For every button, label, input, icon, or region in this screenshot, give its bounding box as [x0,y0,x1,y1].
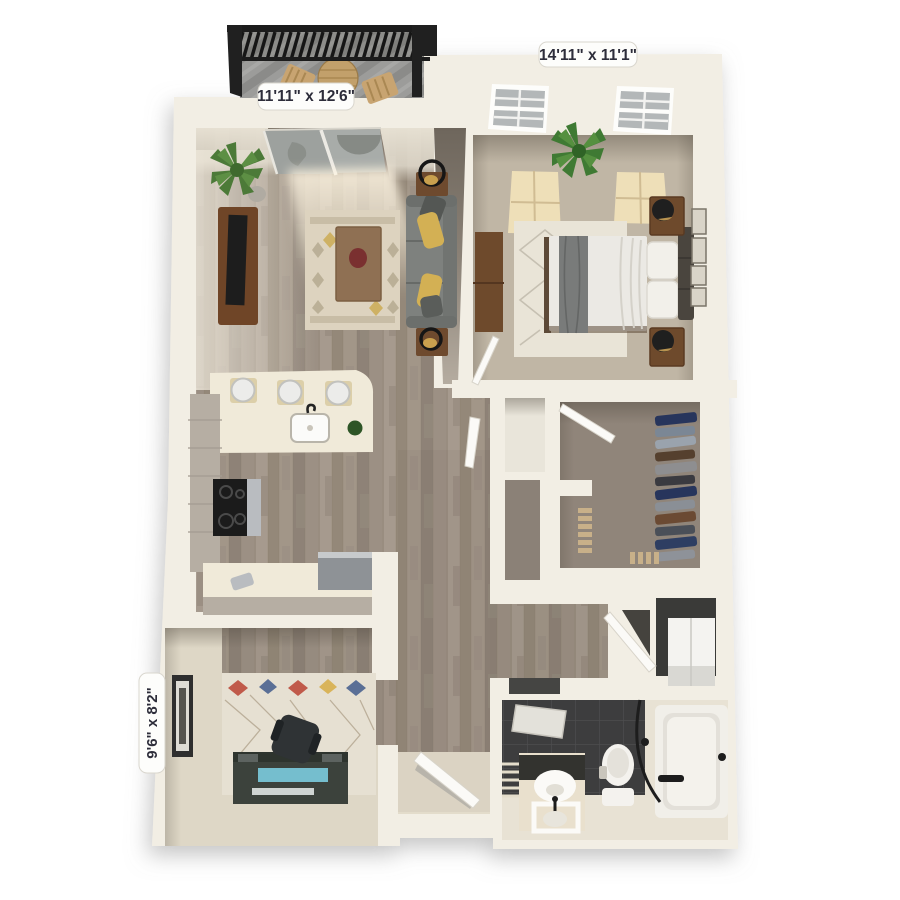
svg-text:14'11" x 11'1": 14'11" x 11'1" [539,47,637,64]
svg-text:9'6" x 8'2": 9'6" x 8'2" [144,687,161,758]
svg-text:11'11" x 12'6": 11'11" x 12'6" [257,88,355,105]
